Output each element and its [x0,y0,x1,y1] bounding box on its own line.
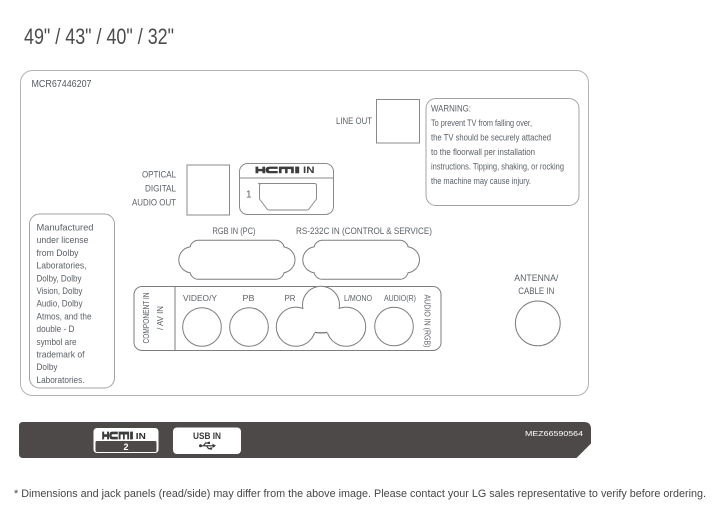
svg-text:the machine may cause injury.: the machine may cause injury. [431,176,531,186]
svg-text:ANTENNA/: ANTENNA/ [514,273,558,283]
svg-text:Vision, Dolby: Vision, Dolby [37,286,83,296]
svg-text:double - D: double - D [37,324,75,334]
svg-text:RS-232C IN (CONTROL & SERVICE): RS-232C IN (CONTROL & SERVICE) [296,226,432,236]
svg-text:instructions. Tipping, shaking: instructions. Tipping, shaking, or rocki… [431,162,564,172]
svg-text:PB: PB [243,293,255,303]
svg-text:* Dimensions and jack panels (: * Dimensions and jack panels (read/side)… [14,488,706,500]
svg-text:49" / 43" / 40" / 32": 49" / 43" / 40" / 32" [24,24,174,49]
svg-text:VIDEO/Y: VIDEO/Y [183,293,217,303]
svg-text:RGB IN (PC): RGB IN (PC) [213,226,256,236]
svg-text:Dolby, Dolby: Dolby, Dolby [37,273,82,283]
svg-text:Laboratories.: Laboratories. [37,375,85,385]
svg-text:under license: under license [37,235,89,245]
svg-text:L/MONO: L/MONO [344,293,372,303]
svg-text:/ AV IN: / AV IN [155,306,165,330]
svg-text:symbol are: symbol are [37,337,77,347]
svg-text:1: 1 [246,190,252,201]
svg-text:AUDIO(R): AUDIO(R) [384,293,416,303]
svg-text:MEZ66590564: MEZ66590564 [525,429,583,438]
svg-text:AUDIO OUT: AUDIO OUT [132,198,176,209]
svg-text:COMPONENT IN: COMPONENT IN [141,293,151,344]
svg-text:AUDIO IN (RGB): AUDIO IN (RGB) [423,295,433,348]
svg-text:Audio, Dolby: Audio, Dolby [37,299,83,309]
svg-text:LINE OUT: LINE OUT [336,116,372,126]
svg-text:PR: PR [285,293,296,303]
svg-text:the TV should be securely atta: the TV should be securely attached [431,133,551,143]
svg-text:DIGITAL: DIGITAL [145,184,176,195]
svg-text:IN: IN [136,431,146,441]
svg-text:USB IN: USB IN [193,431,221,442]
svg-text:from Dolby: from Dolby [37,248,79,258]
svg-text:trademark of: trademark of [37,350,85,360]
svg-text:WARNING:: WARNING: [431,104,471,114]
svg-text:to the floorwall per installat: to the floorwall per installation [431,147,535,157]
svg-text:To prevent TV from falling ove: To prevent TV from falling over, [431,118,532,128]
svg-text:2: 2 [123,442,128,452]
svg-text:Dolby: Dolby [37,362,58,372]
svg-text:Manufactured: Manufactured [37,223,94,233]
svg-text:OPTICAL: OPTICAL [142,170,176,181]
svg-text:Laboratories,: Laboratories, [37,261,87,271]
svg-text:Atmos, and the: Atmos, and the [37,311,92,321]
svg-text:IN: IN [303,165,315,175]
svg-text:CABLE IN: CABLE IN [518,286,554,296]
svg-text:MCR67446207: MCR67446207 [32,79,92,90]
